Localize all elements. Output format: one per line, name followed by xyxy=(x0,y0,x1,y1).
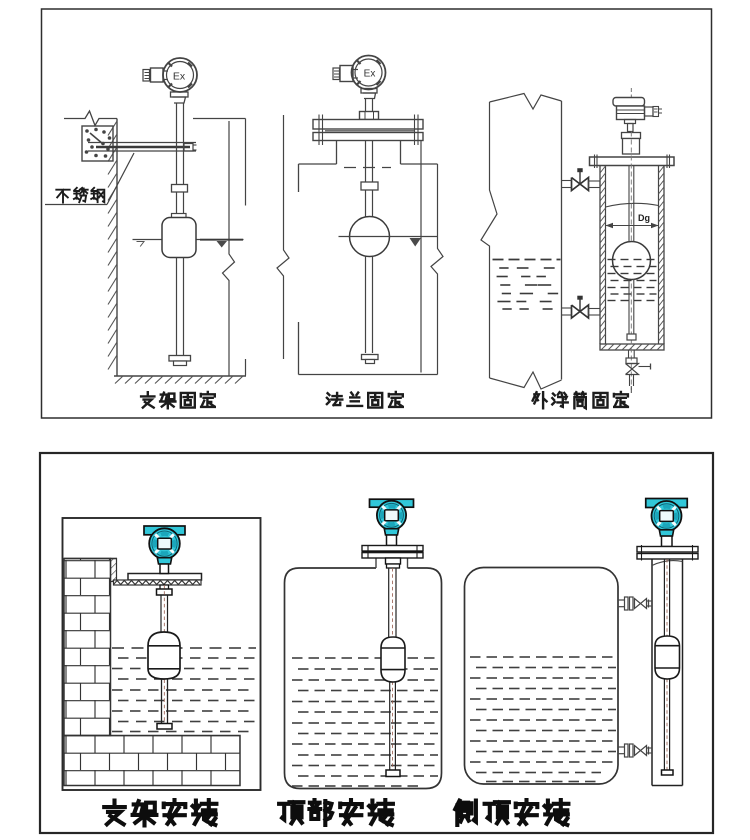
svg-text:Ex: Ex xyxy=(173,71,186,83)
svg-text:Dg: Dg xyxy=(638,213,650,223)
svg-text:Ex: Ex xyxy=(364,69,376,80)
